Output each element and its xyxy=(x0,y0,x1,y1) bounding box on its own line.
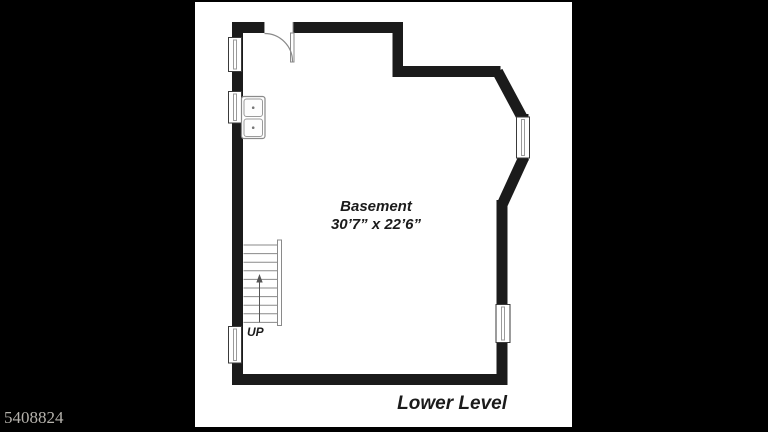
room-name-label: Basement xyxy=(340,198,413,215)
top-wall-left xyxy=(232,22,265,33)
bottom-wall xyxy=(232,374,508,385)
window-right-lower xyxy=(496,305,510,343)
window-left-middle xyxy=(229,92,242,124)
level-caption: Lower Level xyxy=(397,393,508,414)
right-wall xyxy=(497,200,508,385)
floorplan-canvas: UP Basement 30’7” x 22’6” Lower Level 54… xyxy=(0,0,768,432)
stair-stringer xyxy=(278,240,282,326)
sink-drain-bottom xyxy=(252,126,255,129)
laundry-sink xyxy=(242,97,266,139)
room-dimensions-label: 30’7” x 22’6” xyxy=(331,216,422,233)
top-wall-right xyxy=(293,22,403,33)
sink-drain-top xyxy=(252,106,255,109)
floorplan-image: UP Basement 30’7” x 22’6” Lower Level 54… xyxy=(0,0,768,432)
window-bay xyxy=(517,117,530,158)
window-left-lower xyxy=(229,327,242,364)
door-opening xyxy=(265,21,294,34)
upper-right-wall xyxy=(393,66,501,77)
stairs-up-label: UP xyxy=(247,325,265,339)
window-left-upper xyxy=(229,38,242,72)
photo-id-watermark: 5408824 xyxy=(4,408,64,427)
